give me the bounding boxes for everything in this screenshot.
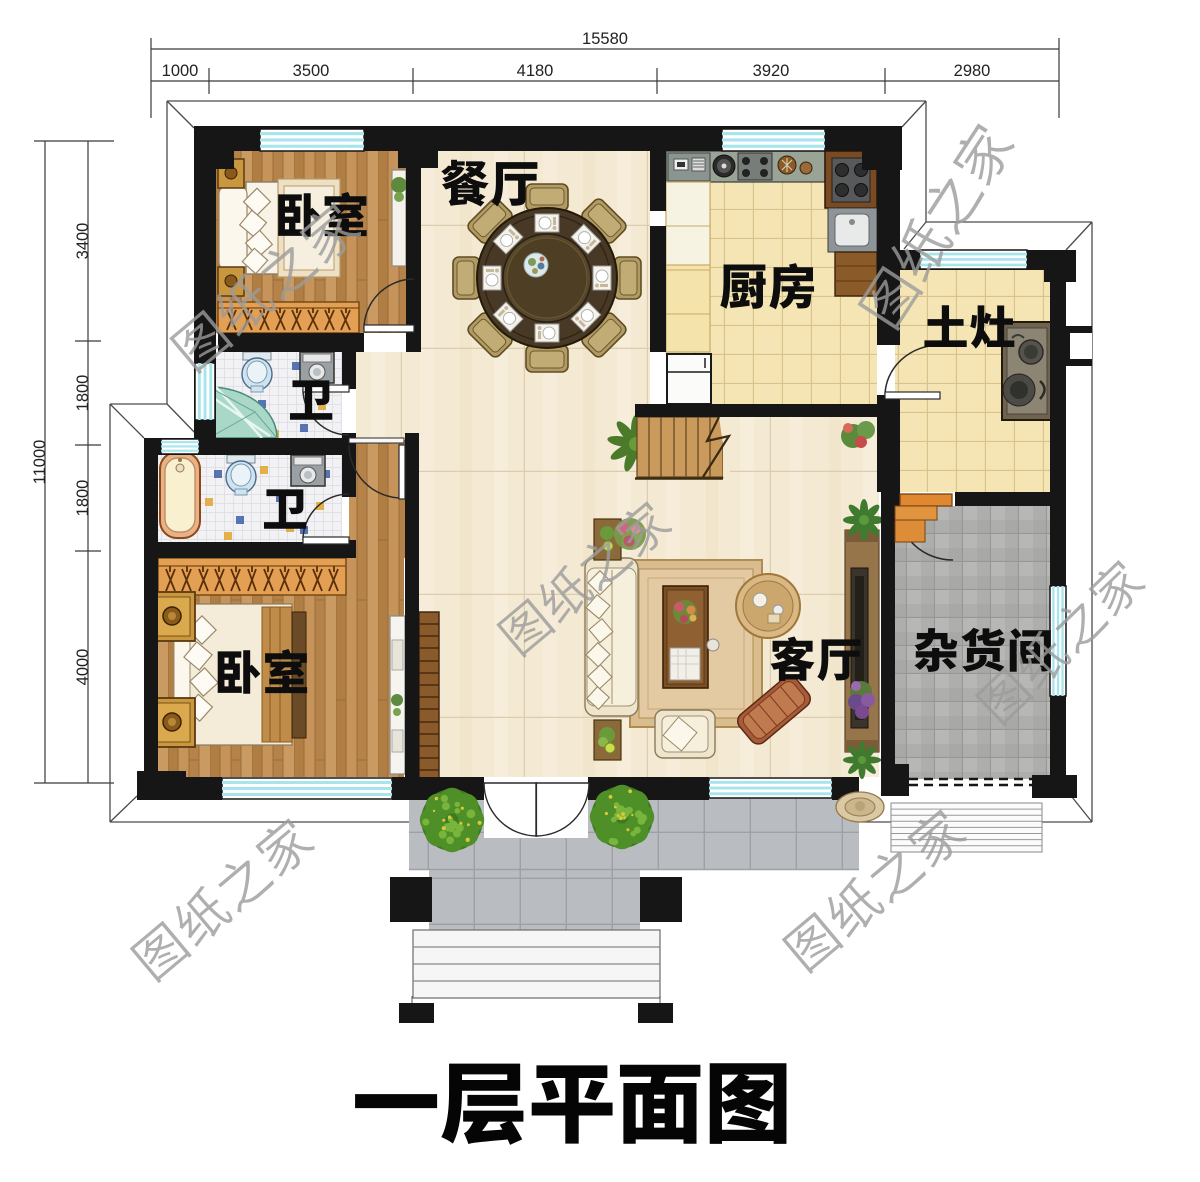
svg-text:4180: 4180: [517, 62, 554, 80]
svg-text:2980: 2980: [954, 62, 991, 80]
svg-text:15580: 15580: [582, 30, 628, 48]
svg-text:1000: 1000: [162, 62, 199, 80]
svg-text:3920: 3920: [753, 62, 790, 80]
svg-text:11000: 11000: [31, 440, 49, 485]
svg-text:1800: 1800: [74, 480, 92, 517]
svg-text:3500: 3500: [293, 62, 330, 80]
svg-text:4000: 4000: [74, 649, 92, 686]
svg-text:3400: 3400: [74, 223, 92, 260]
svg-text:1800: 1800: [74, 375, 92, 412]
